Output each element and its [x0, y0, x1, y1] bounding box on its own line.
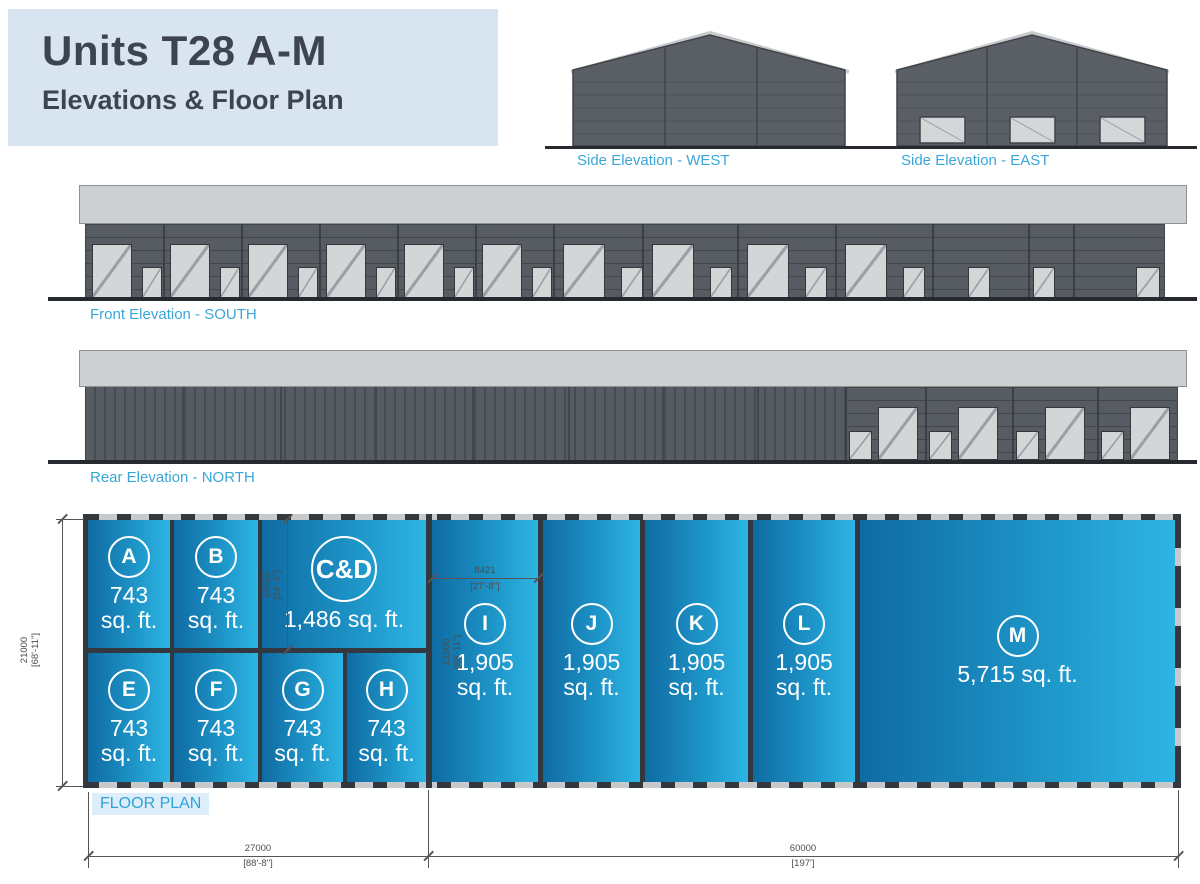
roller-door: [1045, 407, 1085, 460]
unit-j-badge: J: [571, 603, 613, 645]
unit-f: F 743sq. ft.: [174, 653, 258, 782]
west-elevation-label: Side Elevation - WEST: [577, 152, 730, 169]
bay-divider: [375, 387, 377, 461]
unit-g-area: 743sq. ft.: [274, 716, 330, 766]
personnel-door: [710, 267, 732, 298]
dim-text-left-block-mm: 27000: [88, 843, 428, 854]
bay-divider: [553, 224, 555, 298]
south-elevation-label: Front Elevation - SOUTH: [90, 306, 257, 323]
personnel-door: [220, 267, 240, 298]
title-panel: Units T28 A-M Elevations & Floor Plan: [8, 9, 498, 146]
south-elevation-fascia: [79, 185, 1187, 224]
north-elevation-ground-line: [48, 460, 1197, 464]
drawing-sheet: Units T28 A-M Elevations & Floor Plan: [0, 0, 1200, 884]
bay-divider: [1028, 224, 1030, 298]
bay-divider: [662, 387, 664, 461]
personnel-door: [929, 431, 952, 460]
bay-divider: [737, 224, 739, 298]
roller-door: [404, 244, 444, 298]
side-elevation-ground-line: [545, 146, 1197, 149]
unit-g-badge: G: [282, 669, 324, 711]
unit-h-area: 743sq. ft.: [358, 716, 414, 766]
unit-cd-area: 1,486 sq. ft.: [284, 607, 404, 632]
unit-b-badge: B: [195, 536, 237, 578]
bay-divider: [835, 224, 837, 298]
north-elevation-label: Rear Elevation - NORTH: [90, 469, 255, 486]
unit-cd-badge: C&D: [311, 536, 377, 602]
bay-divider: [472, 387, 474, 461]
dim-text-right-block-mm: 60000: [428, 843, 1178, 854]
unit-f-badge: F: [195, 669, 237, 711]
personnel-door: [1033, 267, 1055, 298]
unit-b: B 743sq. ft.: [174, 520, 258, 648]
unit-e-badge: E: [108, 669, 150, 711]
unit-b-area: 743sq. ft.: [188, 583, 244, 633]
unit-a: A 743sq. ft.: [88, 520, 170, 648]
roller-door: [482, 244, 522, 298]
bay-divider: [397, 224, 399, 298]
roller-door: [747, 244, 789, 298]
personnel-door: [1136, 267, 1160, 298]
roller-door: [563, 244, 605, 298]
unit-m: M 5,715 sq. ft.: [860, 520, 1175, 782]
plan-south-wall: [85, 782, 1180, 788]
personnel-door: [376, 267, 396, 298]
plan-east-wall: [1175, 514, 1181, 788]
dim-text-unit-i-width-ft: [27'-8"]: [432, 581, 538, 592]
unit-e-area: 743sq. ft.: [101, 716, 157, 766]
roller-door: [326, 244, 366, 298]
east-elevation-drawing: [868, 25, 1200, 149]
bay-divider: [1073, 224, 1075, 298]
unit-k-badge: K: [676, 603, 718, 645]
unit-l-badge: L: [783, 603, 825, 645]
personnel-door: [1101, 431, 1124, 460]
personnel-door: [454, 267, 474, 298]
unit-i-area: 1,905sq. ft.: [456, 650, 514, 700]
bay-divider: [1097, 387, 1099, 461]
unit-f-area: 743sq. ft.: [188, 716, 244, 766]
unit-a-area: 743sq. ft.: [101, 583, 157, 633]
page-subtitle: Elevations & Floor Plan: [42, 85, 344, 116]
bay-divider: [1012, 387, 1014, 461]
bay-divider: [925, 387, 927, 461]
bay-divider: [932, 224, 934, 298]
personnel-door: [968, 267, 990, 298]
unit-j: J 1,905sq. ft.: [543, 520, 640, 782]
dim-line-overall-width: [88, 856, 1178, 857]
roller-door: [878, 407, 918, 460]
personnel-door: [805, 267, 827, 298]
unit-j-area: 1,905sq. ft.: [563, 650, 621, 700]
dim-text-overall-depth: 21000 [68'-11"]: [19, 605, 41, 695]
north-elevation-fascia: [79, 350, 1187, 387]
unit-e: E 743sq. ft.: [88, 653, 170, 782]
dim-text-unit-i-width-mm: 8421: [432, 565, 538, 576]
bay-divider: [475, 224, 477, 298]
bay-divider: [845, 387, 847, 461]
roller-door: [845, 244, 887, 298]
roller-door: [958, 407, 998, 460]
unit-m-area: 5,715 sq. ft.: [957, 662, 1077, 687]
unit-h: H 743sq. ft.: [347, 653, 426, 782]
personnel-door: [621, 267, 643, 298]
unit-l: L 1,905sq. ft.: [753, 520, 855, 782]
bay-divider: [182, 387, 184, 461]
dim-text-right-block-ft: [197']: [428, 858, 1178, 869]
personnel-door: [849, 431, 872, 460]
dim-line-unit-i-width: [432, 578, 538, 579]
roller-door: [92, 244, 132, 298]
unit-g: G 743sq. ft.: [262, 653, 343, 782]
bay-divider: [757, 387, 759, 461]
bay-divider: [163, 224, 165, 298]
east-elevation-label: Side Elevation - EAST: [901, 152, 1049, 169]
south-elevation-ground-line: [48, 297, 1197, 301]
personnel-door: [532, 267, 552, 298]
west-elevation-drawing: [543, 25, 875, 149]
bay-divider: [241, 224, 243, 298]
dim-line-cd-depth: [287, 519, 288, 650]
unit-l-area: 1,905sq. ft.: [775, 650, 833, 700]
personnel-door: [298, 267, 318, 298]
personnel-door: [142, 267, 162, 298]
unit-i-badge: I: [464, 603, 506, 645]
floor-plan-label: FLOOR PLAN: [92, 793, 209, 815]
north-elevation-wall-clad: [85, 387, 845, 461]
dim-line-overall-depth: [62, 519, 63, 787]
page-title: Units T28 A-M: [42, 27, 327, 75]
bay-divider: [280, 387, 282, 461]
bay-divider: [319, 224, 321, 298]
bay-divider: [568, 387, 570, 461]
personnel-door: [903, 267, 925, 298]
unit-k-area: 1,905sq. ft.: [668, 650, 726, 700]
unit-m-badge: M: [997, 615, 1039, 657]
roller-door: [1130, 407, 1170, 460]
dim-text-unit-i-depth: 21000 [68'-11"]: [441, 607, 463, 697]
roller-door: [652, 244, 694, 298]
unit-h-badge: H: [366, 669, 408, 711]
unit-a-badge: A: [108, 536, 150, 578]
unit-k: K 1,905sq. ft.: [645, 520, 748, 782]
dim-text-left-block-ft: [88'-8"]: [88, 858, 428, 869]
roller-door: [248, 244, 288, 298]
dim-text-cd-depth: 10425 [34'-3"]: [261, 545, 283, 625]
roller-door: [170, 244, 210, 298]
personnel-door: [1016, 431, 1039, 460]
